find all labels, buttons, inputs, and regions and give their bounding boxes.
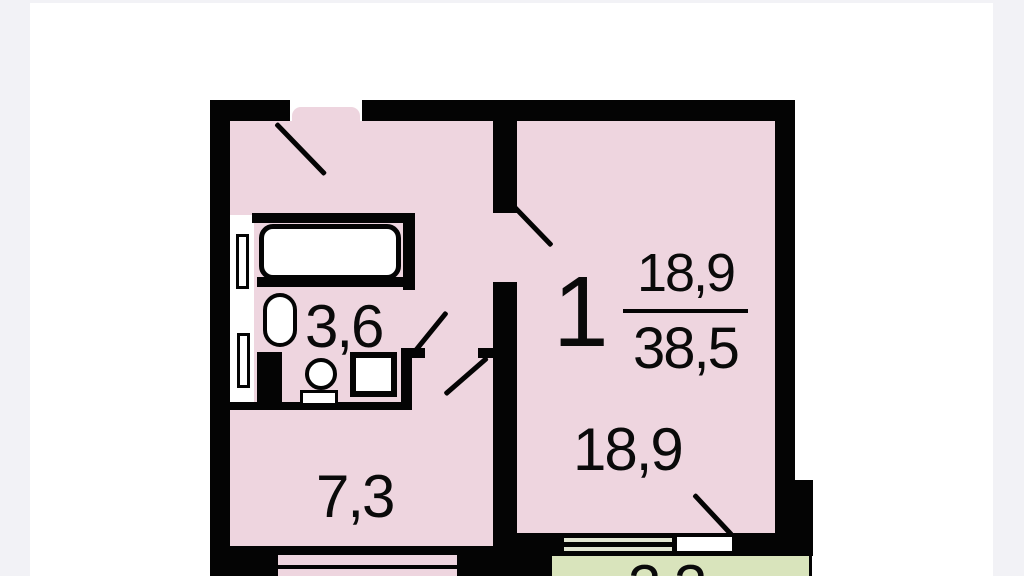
shaft-vent-1-icon — [236, 234, 249, 289]
vent-stripe-1 — [278, 555, 457, 565]
wall-central-lower — [493, 282, 517, 556]
area-denominator-label: 38,5 — [623, 320, 748, 378]
wall-central-upper — [493, 121, 517, 213]
window-sill-line-1 — [564, 538, 672, 542]
area-fraction: 18,9 38,5 — [623, 246, 748, 378]
wall-right-pillar — [775, 480, 813, 556]
bathtub-icon — [259, 224, 401, 280]
wall-bathroom-top — [252, 213, 415, 223]
area-numerator-label: 18,9 — [623, 246, 748, 300]
shaft-vent-2-icon — [237, 333, 250, 388]
wall-right — [775, 100, 795, 480]
room-label-bathroom: 3,6 — [305, 297, 382, 357]
room-label-corridor: 7,3 — [316, 467, 393, 527]
floorplan-canvas: 1 18,9 38,5 18,9 3,6 7,3 3,3 — [0, 0, 1024, 576]
wall-bathroom-right-upper — [403, 213, 415, 290]
flat-number-label: 1 — [553, 262, 607, 362]
sink-pedestal — [300, 390, 338, 406]
window-sill-line-2 — [564, 547, 672, 551]
vent-stripe-2 — [278, 569, 457, 576]
fraction-bar — [623, 309, 748, 313]
apartment-plan: 1 18,9 38,5 18,9 3,6 7,3 3,3 — [0, 0, 1024, 576]
entrance-opening — [292, 107, 360, 123]
toilet-icon — [263, 293, 297, 347]
balcony-door-opening — [677, 537, 732, 551]
room-label-balcony: 3,3 — [628, 557, 705, 576]
wall-bathroom-partition — [257, 352, 282, 403]
wall-left — [210, 100, 230, 576]
room-label-living: 18,9 — [573, 420, 682, 480]
sink-icon — [305, 358, 337, 390]
wall-top-right — [362, 100, 795, 121]
